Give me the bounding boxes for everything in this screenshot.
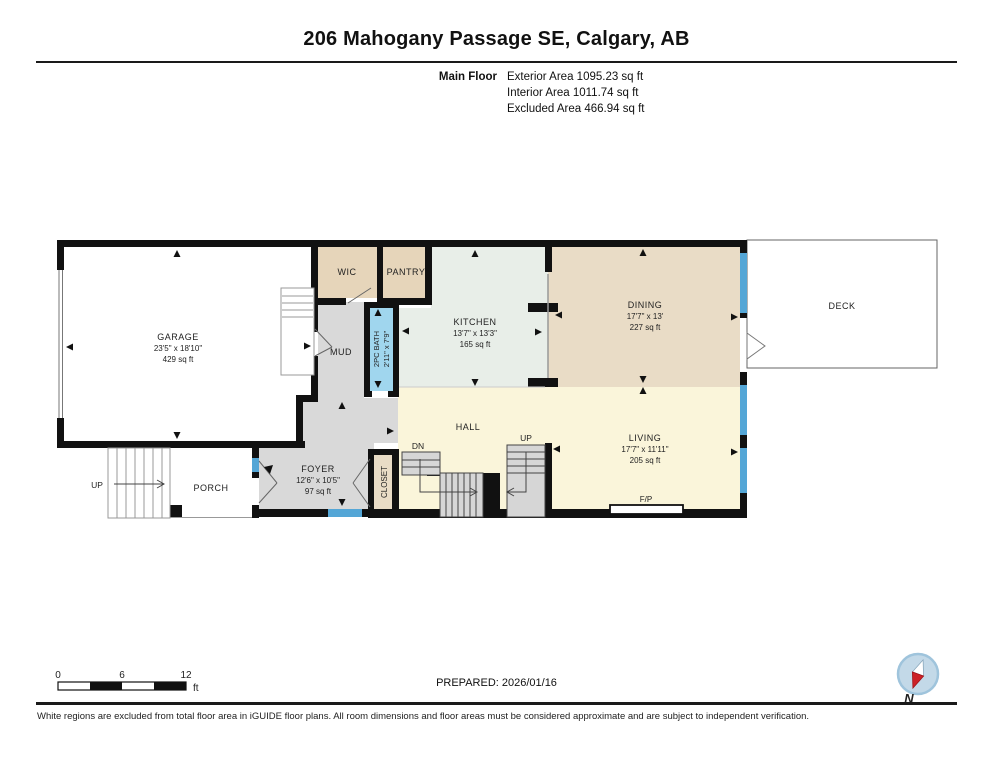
foyer-label: FOYER	[301, 464, 335, 474]
up-label: UP	[520, 433, 532, 443]
porch-stairs	[108, 448, 170, 518]
dining-area: 227 sq ft	[630, 323, 661, 332]
deck-label: DECK	[828, 301, 855, 311]
garage-stairs	[281, 288, 314, 375]
closet-label: CLOSET	[380, 466, 389, 498]
living-dims: 17'7" x 11'11"	[621, 445, 668, 454]
garage-label: GARAGE	[157, 332, 199, 342]
pantry-label: PANTRY	[387, 267, 426, 277]
dining-window	[740, 253, 747, 313]
mud-label: MUD	[330, 347, 352, 357]
disclaimer-text: White regions are excluded from total fl…	[37, 711, 809, 722]
bath-dims: 2'11" x 7'9"	[382, 330, 391, 367]
fireplace	[610, 505, 683, 514]
kitchen-area: 165 sq ft	[460, 340, 491, 349]
living-area: 205 sq ft	[630, 456, 661, 465]
porch-label: PORCH	[193, 483, 228, 493]
kitchen-dims: 13'7" x 13'3"	[453, 329, 497, 338]
dn-label: DN	[412, 441, 424, 451]
floorplan-page: 206 Mahogany Passage SE, Calgary, AB Mai…	[0, 0, 993, 768]
hall-label: HALL	[456, 422, 481, 432]
room-fills	[259, 240, 937, 511]
garage-area: 429 sq ft	[163, 355, 194, 364]
bath-label: 2PC BATH	[372, 331, 381, 367]
foyer-dims: 12'6" x 10'5"	[296, 476, 340, 485]
living-window-1	[740, 385, 747, 435]
floorplan-drawing: GARAGE 23'5" x 18'10" 429 sq ft WIC PANT…	[0, 0, 993, 768]
wic-label: WIC	[338, 267, 357, 277]
foyer-side-window	[252, 458, 259, 472]
foyer-front-window	[328, 509, 362, 517]
porch-up-label: UP	[91, 480, 103, 490]
fireplace-label: F/P	[640, 495, 652, 504]
garage-dims: 23'5" x 18'10"	[154, 344, 202, 353]
dining-label: DINING	[628, 300, 663, 310]
prepared-date: PREPARED: 2026/01/16	[0, 677, 993, 689]
foyer-area: 97 sq ft	[305, 487, 332, 496]
footer-divider	[36, 702, 957, 705]
living-label: LIVING	[629, 433, 662, 443]
kitchen-label: KITCHEN	[453, 317, 496, 327]
dn-stair-flight	[402, 452, 440, 475]
living-window-2	[740, 448, 747, 493]
dining-dims: 17'7" x 13'	[627, 312, 664, 321]
